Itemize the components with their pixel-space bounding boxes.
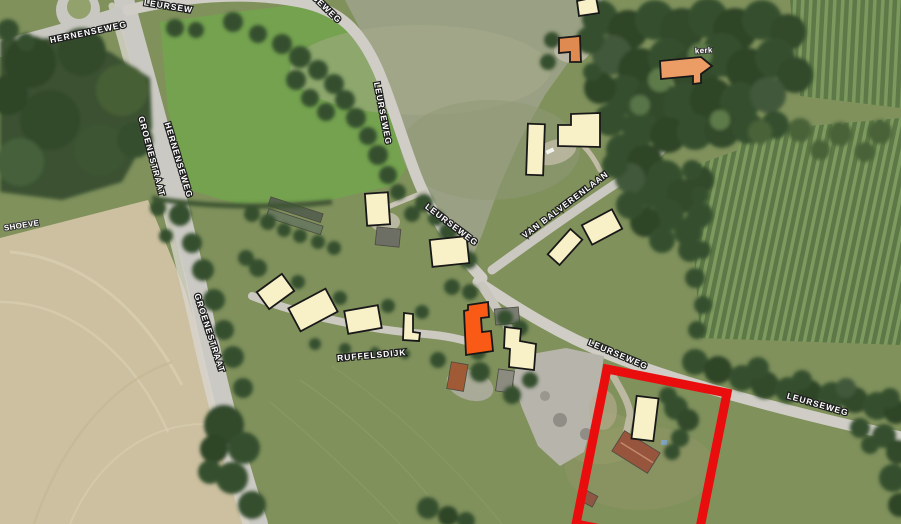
building-footprint-crossroads-house[interactable] bbox=[430, 236, 470, 267]
building-footprint-leurseweg-house-north[interactable] bbox=[365, 192, 390, 226]
building-footprint-ruffelsdijk-house-3[interactable] bbox=[344, 305, 381, 334]
building-footprint-parcel-house[interactable] bbox=[631, 396, 658, 441]
building-footprint-north-edge-house[interactable] bbox=[577, 0, 599, 16]
building-footprint-balverenlaan-house-west[interactable] bbox=[526, 124, 545, 176]
aerial-map-canvas[interactable]: LEURSEWSEWEGHERNENSEWEGGROENESTRAATHERNE… bbox=[0, 0, 901, 524]
aerial-map-svg: LEURSEWSEWEGHERNENSEWEGGROENESTRAATHERNE… bbox=[0, 0, 901, 524]
church-label: kerk bbox=[695, 45, 714, 55]
